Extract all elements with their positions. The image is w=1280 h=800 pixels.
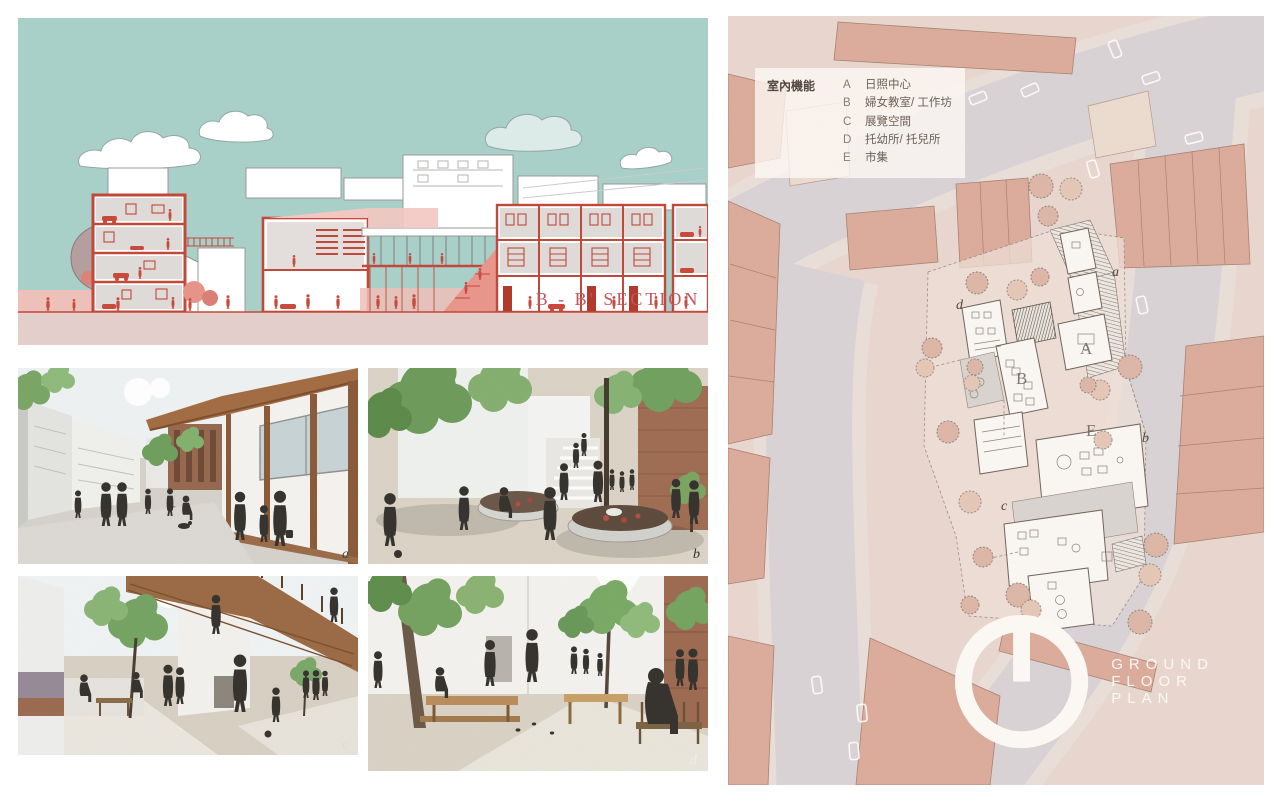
- presentation-board: { "section": { "label": "B - B' SECTION"…: [0, 0, 1280, 800]
- section-title: B - B' SECTION: [536, 289, 701, 309]
- render-a-image: a: [18, 368, 358, 564]
- legend-row: E市集: [843, 150, 952, 168]
- section-building-2: [263, 208, 368, 312]
- render-c: c: [18, 576, 358, 755]
- ground-strip: [18, 312, 708, 345]
- legend-table: A日照中心 B婦女教室/ 工作坊 C展覽空間 D托幼所/ 托兒所 E市集: [843, 77, 952, 168]
- north-arrow-icon: [944, 604, 1099, 759]
- section-drawing: B - B' SECTION: [18, 18, 708, 345]
- plan-footer: GROUND FLOOR PLAN: [944, 604, 1248, 759]
- section-drawing-panel: B - B' SECTION: [18, 18, 708, 345]
- ground-floor-plan-panel: a b c d A B E 室內機能 A日照中心: [728, 16, 1264, 785]
- legend-row: A日照中心: [843, 77, 952, 95]
- legend-row: B婦女教室/ 工作坊: [843, 95, 952, 113]
- render-d-image: d: [368, 576, 708, 771]
- plan-legend: 室內機能 A日照中心 B婦女教室/ 工作坊 C展覽空間 D托幼所/ 托兒所 E市…: [755, 68, 965, 178]
- legend-row: D托幼所/ 托兒所: [843, 132, 952, 150]
- legend-title: 室內機能: [767, 77, 815, 95]
- render-b-image: b: [368, 368, 708, 564]
- render-d: d: [368, 576, 708, 771]
- render-b: b: [368, 368, 708, 564]
- render-a: a: [18, 368, 358, 564]
- plan-title: GROUND FLOOR PLAN: [1111, 656, 1248, 707]
- legend-row: C展覽空間: [843, 114, 952, 132]
- render-c-image: c: [18, 576, 358, 755]
